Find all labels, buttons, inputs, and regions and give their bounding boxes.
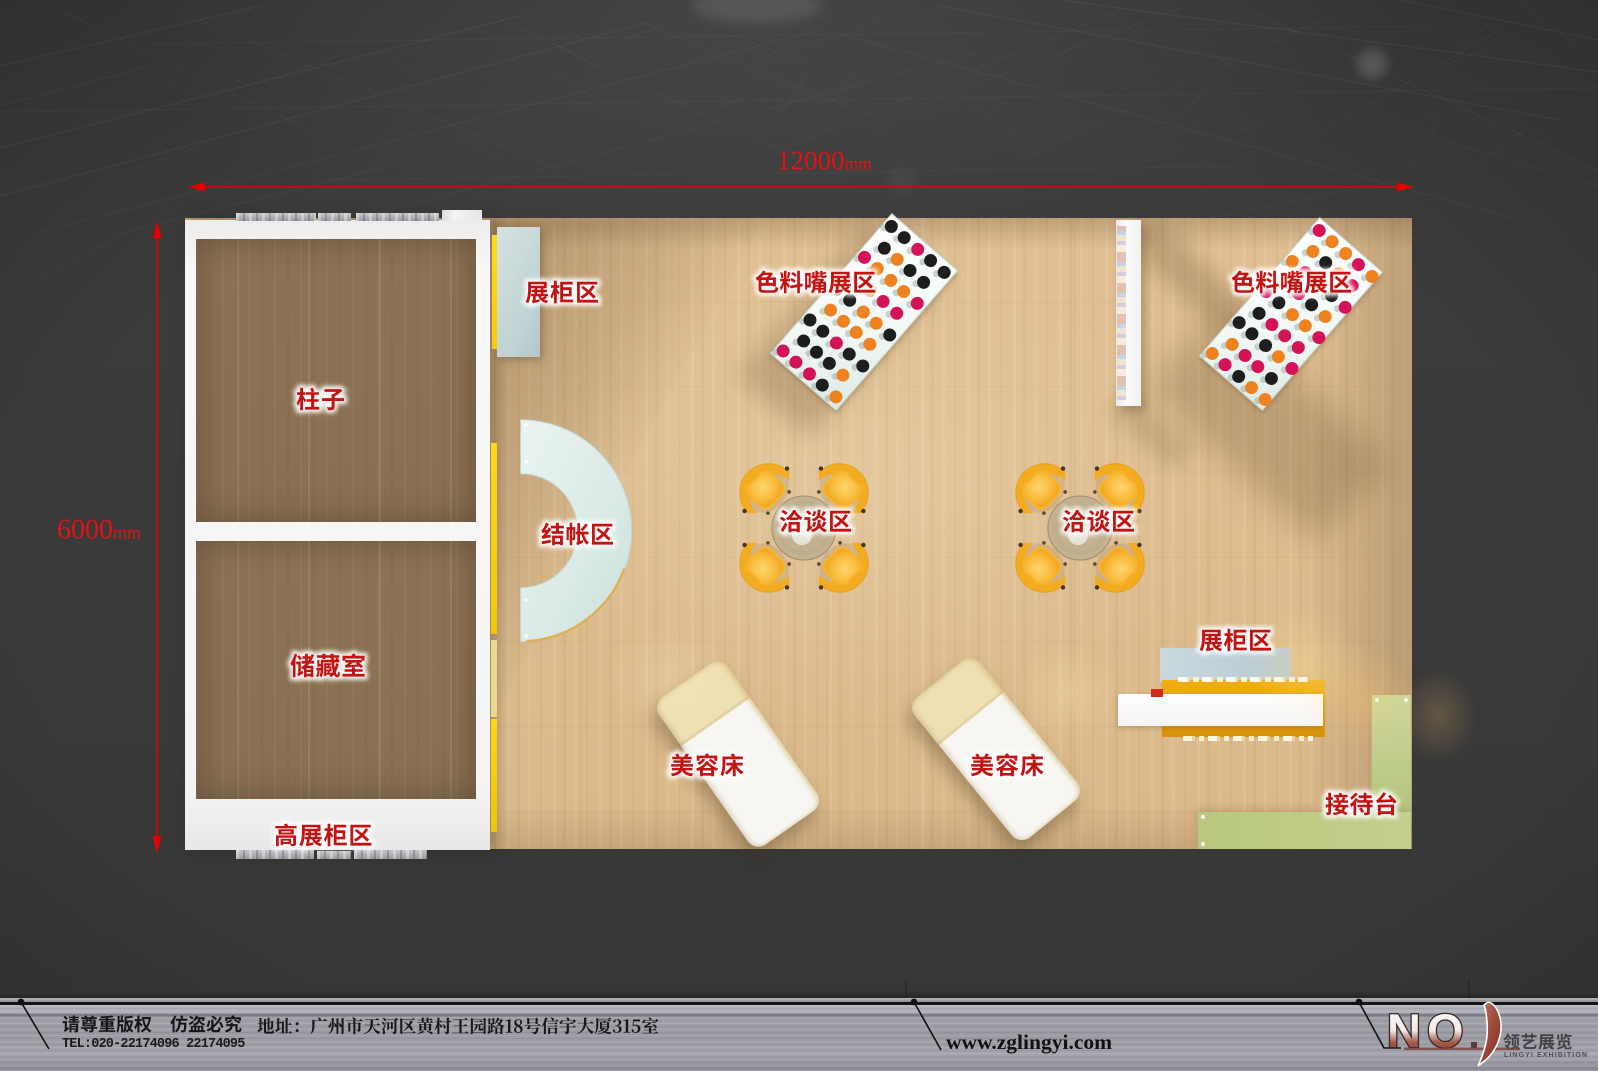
svg-text:6000mm: 6000mm [57, 515, 141, 546]
svg-text:12000mm: 12000mm [777, 146, 872, 176]
